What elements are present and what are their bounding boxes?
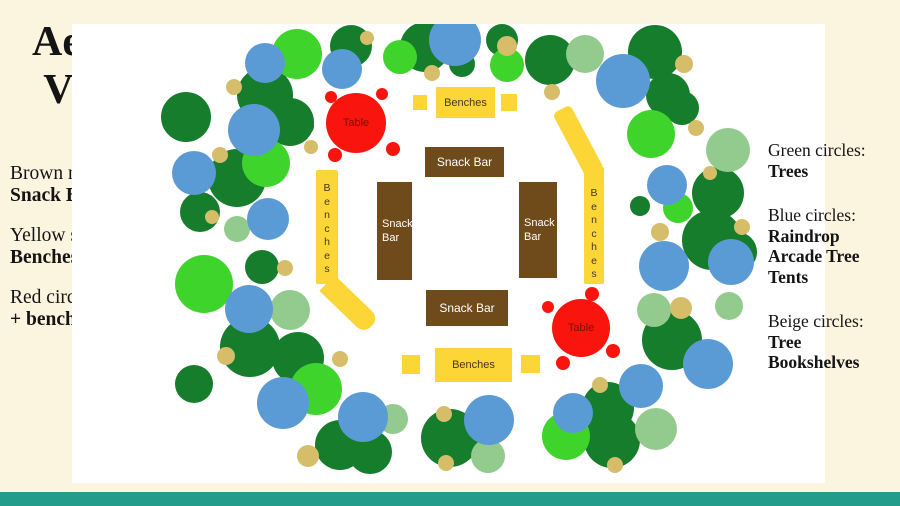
benches-rect: Benches xyxy=(436,87,495,118)
tree-bookshelf-circle xyxy=(360,31,374,45)
key-item-value: Benches xyxy=(10,247,78,268)
tree-circle xyxy=(635,408,677,450)
raindrop-arcade-tree-tent-circle xyxy=(708,239,754,285)
raindrop-arcade-tree-tent-circle xyxy=(639,241,689,291)
bench-path: B e n c h e s xyxy=(316,170,338,284)
tree-circle xyxy=(161,92,211,142)
tree-bookshelf-circle xyxy=(436,406,452,422)
snack-bar: Snack Bar xyxy=(519,182,557,278)
tree-bookshelf-circle xyxy=(651,223,669,241)
tree-circle xyxy=(245,250,279,284)
legend-item-label: Blue circles: xyxy=(768,205,882,226)
tree-bookshelf-circle xyxy=(544,84,560,100)
tree-circle xyxy=(715,292,743,320)
tree-bookshelf-circle xyxy=(217,347,235,365)
raindrop-arcade-tree-tent-circle xyxy=(553,393,593,433)
table-bench-seat xyxy=(556,356,570,370)
raindrop-arcade-tree-tent-circle xyxy=(322,49,362,89)
bench-path: B e n c h e s xyxy=(584,167,604,284)
snack-bar: Snack Bar xyxy=(377,182,412,280)
footer-bar xyxy=(0,492,900,506)
legend-item-label: Green circles: xyxy=(768,140,882,161)
table-bench-seat xyxy=(386,142,400,156)
bench-path xyxy=(319,275,379,334)
tree-circle xyxy=(706,128,750,172)
raindrop-arcade-tree-tent-circle xyxy=(225,285,273,333)
tree-bookshelf-circle xyxy=(592,377,608,393)
tree-bookshelf-circle xyxy=(688,120,704,136)
legend-item-value: Raindrop Arcade Tree Tents xyxy=(768,226,860,287)
raindrop-arcade-tree-tent-circle xyxy=(619,364,663,408)
tree-bookshelf-circle xyxy=(497,36,517,56)
tree-bookshelf-circle xyxy=(675,55,693,73)
raindrop-arcade-tree-tent-circle xyxy=(247,198,289,240)
raindrop-arcade-tree-tent-circle xyxy=(245,43,285,83)
legend-item-bookshelves: Beige circles:Tree Bookshelves xyxy=(768,311,882,373)
raindrop-arcade-tree-tent-circle xyxy=(596,54,650,108)
tree-bookshelf-circle xyxy=(212,147,228,163)
legend-right: Green circles:Trees Blue circles:Raindro… xyxy=(768,140,882,397)
legend-item-tents: Blue circles:Raindrop Arcade Tree Tents xyxy=(768,205,882,287)
bench-square xyxy=(521,355,540,373)
raindrop-arcade-tree-tent-circle xyxy=(464,395,514,445)
table-circle: Table xyxy=(326,93,386,153)
tree-bookshelf-circle xyxy=(607,457,623,473)
legend-item-label: Beige circles: xyxy=(768,311,882,332)
snack-bar: Snack Bar xyxy=(425,147,504,177)
bench-square xyxy=(413,95,427,110)
bench-path xyxy=(552,104,603,175)
tree-bookshelf-circle xyxy=(304,140,318,154)
tree-circle xyxy=(383,40,417,74)
raindrop-arcade-tree-tent-circle xyxy=(338,392,388,442)
slide: AerialView Key Brown rectangles:Snack Ba… xyxy=(0,0,900,506)
tree-circle xyxy=(296,117,314,135)
table-bench-seat xyxy=(542,301,554,313)
bench-square xyxy=(501,94,517,111)
tree-circle xyxy=(175,365,213,403)
raindrop-arcade-tree-tent-circle xyxy=(683,339,733,389)
tree-circle xyxy=(630,196,650,216)
legend-item-value: Trees xyxy=(768,161,808,181)
raindrop-arcade-tree-tent-circle xyxy=(257,377,309,429)
tree-bookshelf-circle xyxy=(734,219,750,235)
legend-item-value: Tree Bookshelves xyxy=(768,332,859,373)
tree-circle xyxy=(270,290,310,330)
bench-square xyxy=(402,355,420,374)
table-circle: Table xyxy=(552,299,610,357)
tree-bookshelf-circle xyxy=(226,79,242,95)
benches-rect: Benches xyxy=(435,348,512,382)
tree-bookshelf-circle xyxy=(297,445,319,467)
raindrop-arcade-tree-tent-circle xyxy=(172,151,216,195)
legend-item-trees: Green circles:Trees xyxy=(768,140,882,181)
snack-bar: Snack Bar xyxy=(426,290,508,326)
table-bench-seat xyxy=(606,344,620,358)
raindrop-arcade-tree-tent-circle xyxy=(228,104,280,156)
table-bench-seat xyxy=(376,88,388,100)
tree-circle xyxy=(637,293,671,327)
diagram-panel: B e n c h e sB e n c h e sBenchesBenches… xyxy=(72,24,825,483)
tree-bookshelf-circle xyxy=(670,297,692,319)
tree-bookshelf-circle xyxy=(703,166,717,180)
tree-bookshelf-circle xyxy=(277,260,293,276)
raindrop-arcade-tree-tent-circle xyxy=(647,165,687,205)
tree-bookshelf-circle xyxy=(205,210,219,224)
tree-circle xyxy=(627,110,675,158)
tree-bookshelf-circle xyxy=(332,351,348,367)
tree-bookshelf-circle xyxy=(424,65,440,81)
tree-bookshelf-circle xyxy=(438,455,454,471)
table-bench-seat xyxy=(328,148,342,162)
